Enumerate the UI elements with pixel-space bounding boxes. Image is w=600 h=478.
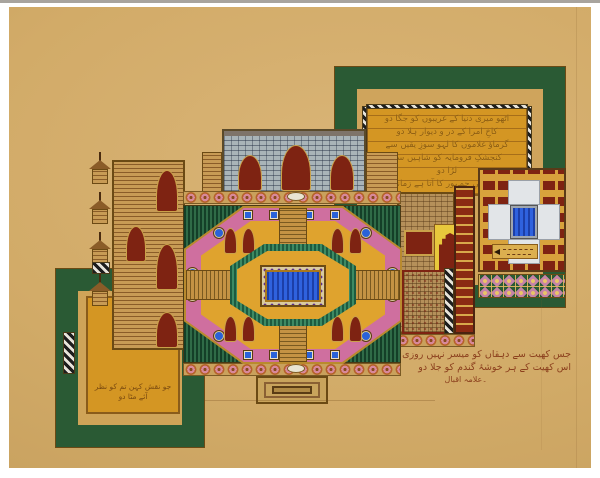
gate-arch-right xyxy=(330,155,354,191)
verse-line-2: کاخِ امرا کے در و دیوار ہلا دو xyxy=(376,126,518,139)
gem-square xyxy=(270,211,278,219)
gem-square xyxy=(331,211,339,219)
gate-cornice xyxy=(224,131,364,136)
bottom-left-panel-text: جو نقش کہن تم کو نظر آئے مٹا دو xyxy=(88,382,178,402)
poet-signature: ۔علامہ اقبال xyxy=(413,374,571,385)
gem-circle xyxy=(361,228,371,238)
pavilion-tile-band xyxy=(478,274,566,298)
reflecting-pool xyxy=(265,270,321,302)
court-arch xyxy=(224,228,237,254)
iqbal-couplet: جس کھیت سے دہقاں کو میسر نہیں روزی اس کھ… xyxy=(413,348,571,385)
gate-wing-left xyxy=(202,152,222,192)
gem-circle xyxy=(214,228,224,238)
minaret-spire-4 xyxy=(86,274,114,308)
annotation-label xyxy=(492,244,538,259)
court-arch xyxy=(331,228,344,254)
central-octagon-court xyxy=(183,205,401,363)
bw-strip-pier xyxy=(444,268,454,334)
paper-crease xyxy=(576,7,577,468)
painting-photo: اٹھو میری دنیا کے غریبوں کو جگا دو کاخِ … xyxy=(0,0,600,478)
rosette-band-pier xyxy=(395,334,475,347)
bw-strip-panel-left xyxy=(63,332,75,374)
verse-line-1: اٹھو میری دنیا کے غریبوں کو جگا دو xyxy=(376,113,518,126)
minaret-spire-1 xyxy=(86,152,114,186)
couplet-line-2: اس کھیت کے ہر خوشۂ گندم کو جلا دو xyxy=(413,361,571,374)
couplet-line-1: جس کھیت سے دہقاں کو میسر نہیں روزی xyxy=(413,348,571,361)
ground-line xyxy=(205,400,435,401)
court-arch xyxy=(242,316,255,342)
annotation-arrow xyxy=(494,249,500,255)
court-arch xyxy=(242,228,255,254)
medallion-bottom xyxy=(287,364,305,373)
photo-top-edge xyxy=(0,0,600,3)
carpet-block xyxy=(402,270,450,334)
facade-niche-4 xyxy=(156,312,178,348)
bottom-left-verse-line-2: آئے مٹا دو xyxy=(88,392,178,402)
verse-line-3: گرماؤ غلاموں کا لہو سوزِ یقیں سے xyxy=(376,139,518,152)
pavilion-pool xyxy=(511,206,537,238)
minaret-spire-2 xyxy=(86,192,114,226)
gate-arch-left xyxy=(238,155,262,191)
court-arch xyxy=(224,316,237,342)
court-arch xyxy=(331,316,344,342)
facade-niche-2 xyxy=(126,226,146,262)
red-ladder-beam xyxy=(454,186,475,334)
bw-block-facade xyxy=(92,262,110,274)
bottom-left-verse-line-1: جو نقش کہن تم کو نظر xyxy=(88,382,178,392)
gem-circle xyxy=(214,331,224,341)
minaret-spire-3 xyxy=(86,232,114,266)
left-facade xyxy=(112,160,185,350)
gate-arch-center xyxy=(281,145,311,191)
gate-wing-right xyxy=(366,152,398,192)
paper-crease xyxy=(541,300,542,450)
main-gate xyxy=(222,129,366,193)
facade-niche-3 xyxy=(156,244,178,290)
court-arch xyxy=(349,316,362,342)
gem-square xyxy=(331,351,339,359)
medallion-top xyxy=(287,192,305,201)
facade-niche-1 xyxy=(156,170,178,212)
court-arch xyxy=(349,228,362,254)
bw-strip-top xyxy=(366,104,528,109)
gem-square xyxy=(244,351,252,359)
gem-square xyxy=(270,351,278,359)
gem-circle xyxy=(361,331,371,341)
gem-square xyxy=(244,211,252,219)
pier-panel xyxy=(404,230,434,256)
reflecting-pool-frame xyxy=(260,265,326,307)
